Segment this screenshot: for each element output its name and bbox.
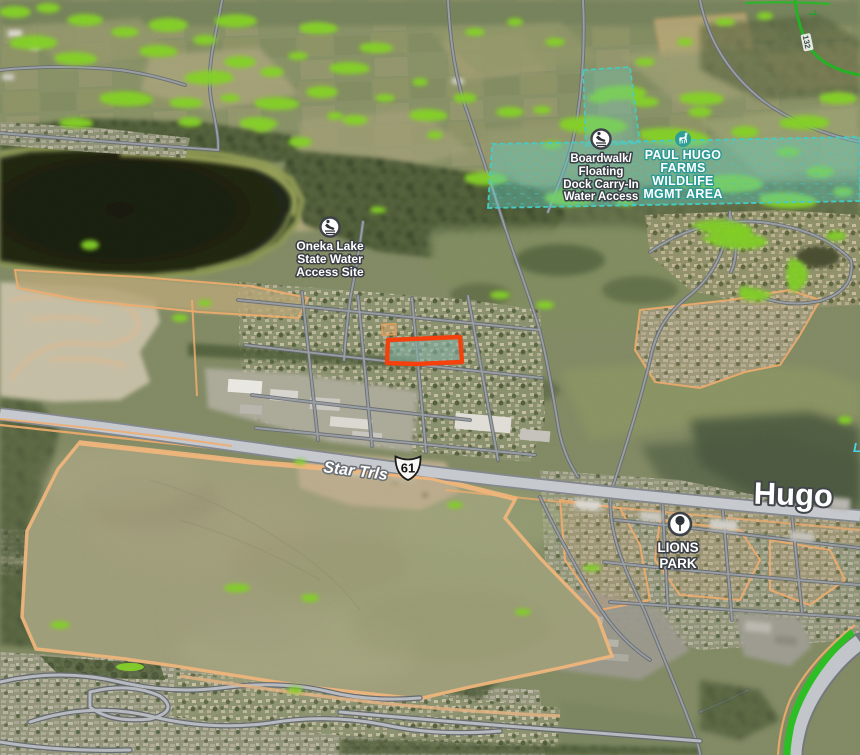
svg-text:PARK: PARK [659,556,697,571]
svg-text:61: 61 [401,461,415,476]
svg-text:WILDLIFE: WILDLIFE [652,174,713,188]
svg-text:Access Site: Access Site [296,265,364,279]
svg-text:Dock Carry-In: Dock Carry-In [563,179,638,191]
svg-text:Hugo: Hugo [753,476,833,514]
svg-text:State Water: State Water [297,252,363,266]
svg-text:Water Access: Water Access [564,191,639,203]
svg-text:Boardwalk/: Boardwalk/ [570,153,632,165]
svg-text:La: La [853,440,860,455]
svg-text:FARMS: FARMS [660,161,705,175]
svg-text:PAUL HUGO: PAUL HUGO [645,148,722,162]
svg-text:Oneka Lake: Oneka Lake [296,239,364,253]
svg-text:LIONS: LIONS [657,540,698,555]
svg-text:Floating: Floating [579,166,624,178]
svg-text:MGMT AREA: MGMT AREA [643,187,722,201]
